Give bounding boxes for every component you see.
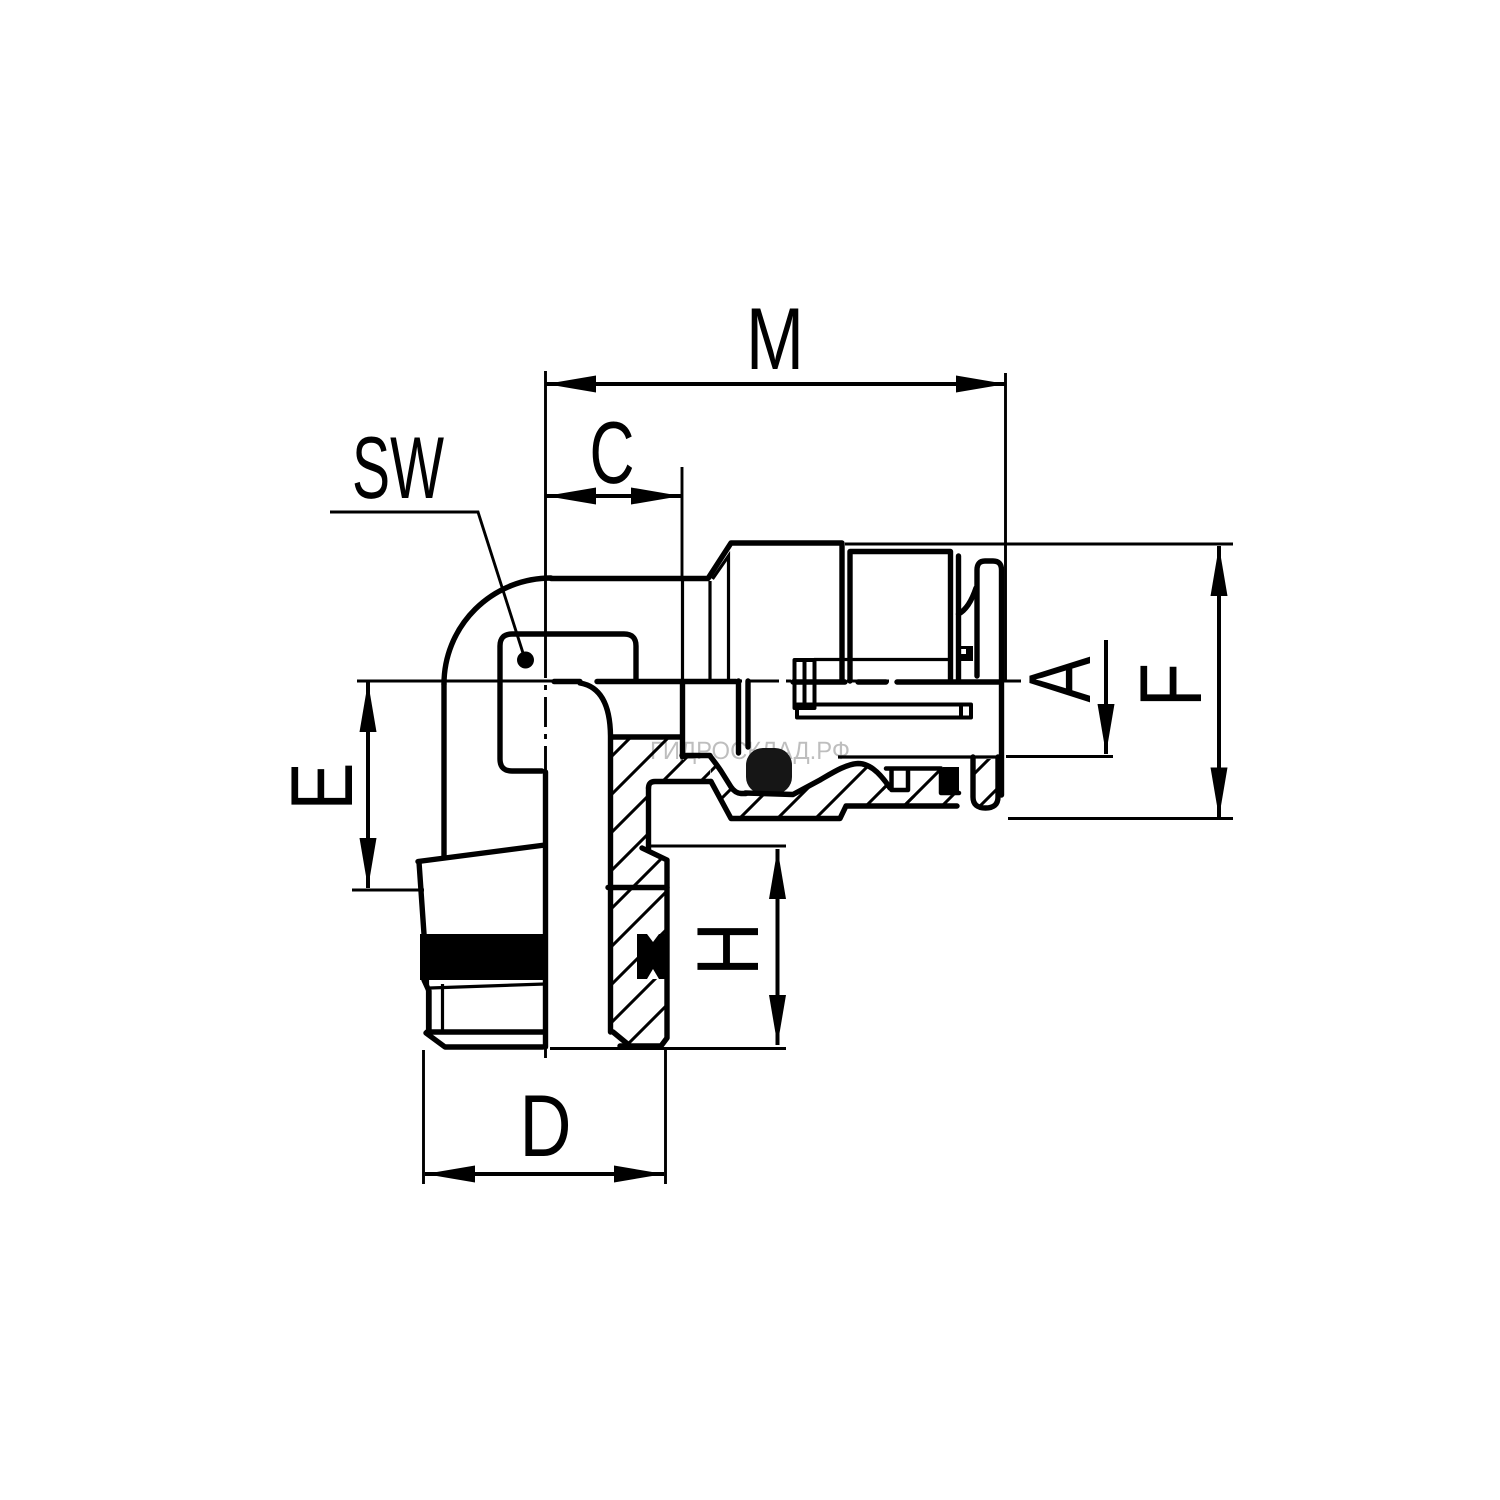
svg-text:M: M: [746, 289, 804, 388]
svg-text:C: C: [590, 403, 635, 502]
svg-text:F: F: [1121, 663, 1220, 707]
svg-text:D: D: [520, 1076, 572, 1175]
svg-text:A: A: [1010, 656, 1109, 702]
svg-text:H: H: [678, 922, 777, 976]
svg-text:SW: SW: [352, 418, 444, 517]
svg-text:E: E: [272, 763, 371, 811]
